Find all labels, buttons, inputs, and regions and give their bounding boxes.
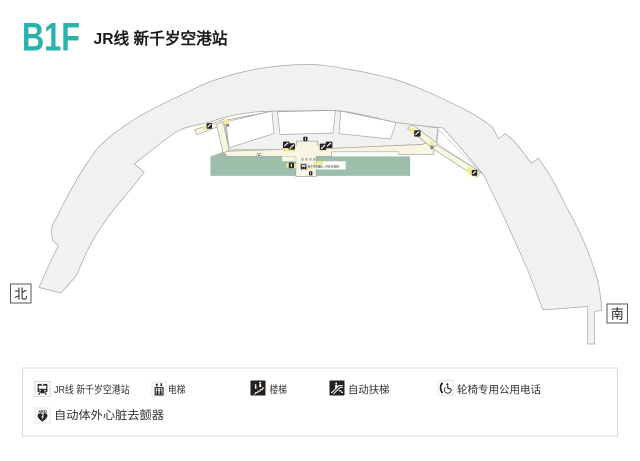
svg-text:南: 南	[611, 307, 624, 322]
svg-text:轮椅专用公用电话: 轮椅专用公用电话	[457, 383, 541, 396]
svg-text:自动体外心脏去颤器: 自动体外心脏去颤器	[54, 408, 165, 422]
svg-text:电梯: 电梯	[168, 383, 185, 396]
svg-text:新千岁空港站（JR线 在来线）: 新千岁空港站（JR线 在来线）	[308, 164, 341, 169]
svg-text:楼梯: 楼梯	[270, 383, 287, 396]
svg-text:北: 北	[14, 287, 27, 302]
svg-text:AED: AED	[38, 409, 47, 414]
svg-text:自动扶梯: 自动扶梯	[348, 383, 389, 396]
svg-text:JR线 新千岁空港站: JR线 新千岁空港站	[54, 383, 130, 396]
svg-text:B1F: B1F	[22, 15, 80, 59]
svg-text:JR线 新千岁空港站: JR线 新千岁空港站	[94, 29, 228, 48]
